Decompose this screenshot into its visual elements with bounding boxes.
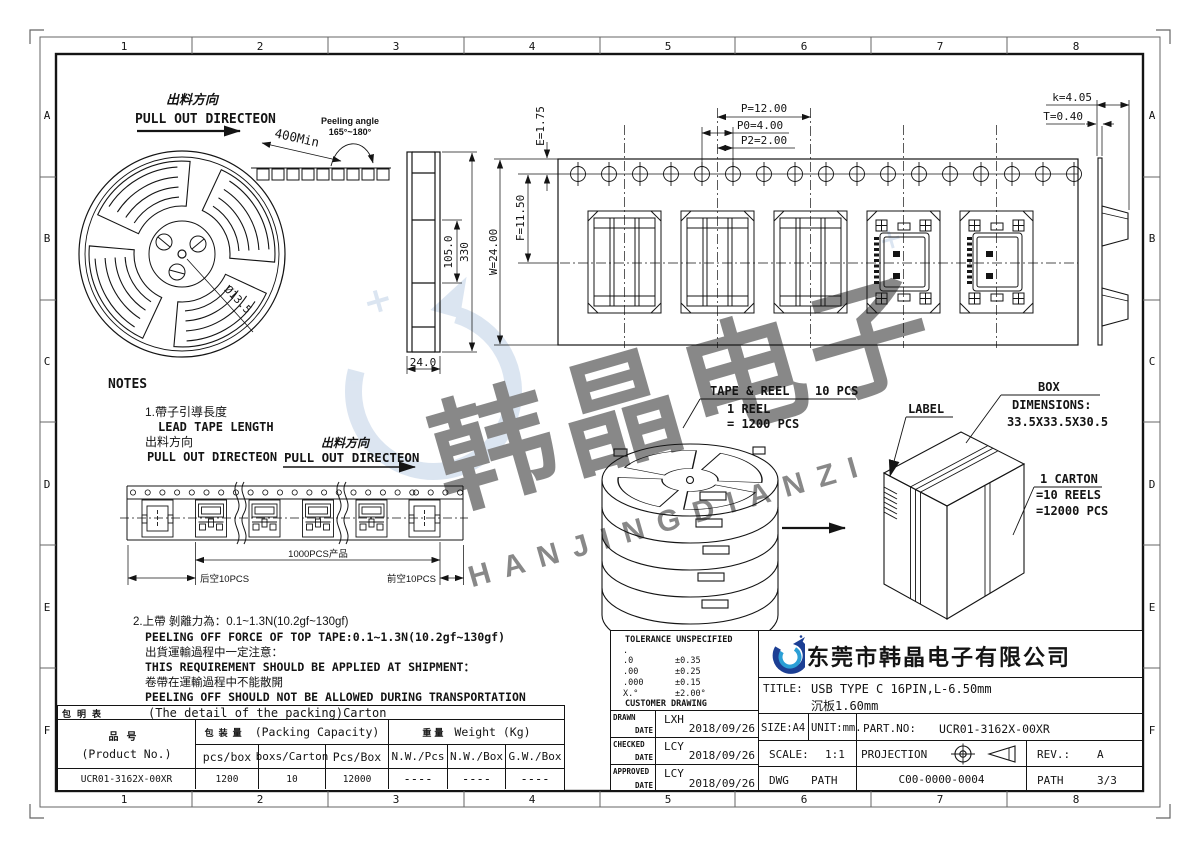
scale-cell: SCALE: 1:1: [759, 741, 857, 767]
row-boxes-carton: 10: [259, 769, 326, 789]
row-pcs-box: 1200: [196, 769, 259, 789]
box-label-hatch: [884, 487, 897, 519]
part-number: UCR01-3162X-00XR: [939, 722, 1050, 736]
row-gw-box: ----: [506, 769, 564, 789]
svg-text:6: 6: [801, 40, 808, 53]
reel-side-view: 105.0 330 24.0: [407, 152, 477, 374]
row-nw-box: ----: [448, 769, 506, 789]
svg-text:7: 7: [937, 793, 944, 806]
title-label: TITLE:: [763, 682, 803, 695]
pull-out-direction-top: 出料方向 PULL OUT DIRECTEON: [135, 92, 276, 131]
note-2: 2.上帶 剝離力為：0.1~1.3N(10.2gf~130gf) PEELING…: [133, 614, 526, 704]
reel-front-view: Ø13.5: [79, 151, 285, 357]
svg-text:1.帶子引導長度: 1.帶子引導長度: [145, 404, 227, 419]
drawing-title-line2: 沉板1.60mm: [811, 697, 878, 714]
projection-symbol: [949, 743, 1023, 765]
packing-table: 包明表 (The detail of the packing)Carton 品号…: [57, 705, 565, 791]
notes-section: NOTES 1.帶子引導長度 LEAD TAPE LENGTH 出料方向 PUL…: [108, 377, 419, 467]
svg-text:2.上帶 剝離力為：0.1~1.3N(10.2gf~130g: 2.上帶 剝離力為：0.1~1.3N(10.2gf~130gf): [133, 614, 349, 628]
svg-text:8: 8: [1073, 793, 1080, 806]
col-boxs-carton: boxs/Carton: [259, 745, 326, 769]
col-pcs-box: pcs/box: [196, 745, 259, 769]
approved-role: APPROVED DATE: [611, 765, 656, 792]
unit-cell: UNIT:mm.: [809, 714, 857, 741]
svg-text:PEELING OFF SHOULD NOT BE ALLO: PEELING OFF SHOULD NOT BE ALLOWED DURING…: [145, 690, 526, 704]
svg-text:A: A: [1149, 109, 1156, 122]
svg-text:卷帶在運輸過程中不能散開: 卷帶在運輸過程中不能散開: [145, 675, 283, 689]
svg-text:3: 3: [393, 793, 400, 806]
reel-count-2: = 1200 PCS: [727, 417, 799, 431]
svg-text:5: 5: [665, 40, 672, 53]
pull-out-2-en: PULL OUT DIRECTEON: [284, 450, 419, 465]
tape-reel-label: TAPE & REEL: [710, 384, 789, 398]
svg-text:3: 3: [393, 40, 400, 53]
company-header: 东莞市韩晶电子有限公司: [759, 631, 1144, 678]
pull-out-2-cn: 出料方向: [321, 436, 371, 450]
svg-text:2: 2: [257, 793, 264, 806]
dim-p: P=12.00: [741, 102, 787, 115]
projection-cell: PROJECTION: [857, 741, 1027, 767]
svg-text:C: C: [44, 355, 51, 368]
lead-length-label: 400Min: [273, 125, 320, 149]
watermark: 韩晶电子 HANJINGDIANZI: [325, 144, 972, 611]
approved-sign: LCY 2018/09/26: [656, 765, 759, 792]
svg-text:2: 2: [257, 40, 264, 53]
tape-section-view: k=4.05 T=0.40: [1043, 91, 1129, 345]
drawn-sign: LXH 2018/09/26: [656, 711, 759, 738]
reel-count-1: 1 REEL: [727, 402, 770, 416]
svg-text:PEELING OFF FORCE OF TOP TAPE:: PEELING OFF FORCE OF TOP TAPE:0.1~1.3N(1…: [145, 630, 505, 644]
carton-count-1: 1 CARTON: [1040, 472, 1098, 486]
svg-text:7: 7: [937, 40, 944, 53]
hub-diameter-label: Ø13.5: [222, 283, 254, 316]
col-nw-box: N.W./Box: [448, 745, 506, 769]
col-nw-pcs: N.W./Pcs: [389, 745, 448, 769]
svg-text:D: D: [44, 478, 51, 491]
dim-t: T=0.40: [1043, 110, 1083, 123]
box-callout: BOX: [1038, 380, 1060, 394]
size-cell: SIZE:A4: [759, 714, 809, 741]
company-name: 东莞市韩晶电子有限公司: [807, 640, 1071, 672]
svg-text:出料方向: 出料方向: [166, 92, 220, 107]
dwg-number: C00-0000-0004: [857, 767, 1027, 792]
svg-text:6: 6: [801, 793, 808, 806]
col-product: 品号 (Product No.): [58, 720, 196, 769]
svg-text:出貨運輸過程中一定注意：: 出貨運輸過程中一定注意：: [145, 645, 283, 659]
svg-text:4: 4: [529, 40, 536, 53]
svg-text:8: 8: [1073, 40, 1080, 53]
row-pcs-carton: 12000: [326, 769, 389, 789]
carton-box: LABEL BOX DIMENSIONS: 33.5X33.5X30.5 1 C…: [884, 380, 1108, 619]
svg-text:LEAD TAPE LENGTH: LEAD TAPE LENGTH: [158, 420, 274, 434]
tape-strip-detail: 1000PCS产品 后空10PCS 前空10PCS: [120, 482, 468, 585]
dim-f: F=11.50: [514, 195, 527, 241]
strip-left-label: 后空10PCS: [200, 573, 249, 585]
row-nw-pcs: ----: [389, 769, 448, 789]
revision: A: [1097, 748, 1104, 761]
packing-table-caption: (The detail of the packing)Carton: [148, 706, 386, 720]
label-callout: LABEL: [908, 402, 944, 416]
carton-count-2: =10 REELS: [1036, 488, 1101, 502]
reel-width-dim: 24.0: [410, 356, 437, 369]
svg-text:PULL OUT DIRECTEON: PULL OUT DIRECTEON: [135, 112, 276, 127]
page-cell: PATH 3/3: [1027, 767, 1144, 792]
svg-text:B: B: [44, 232, 51, 245]
page-number: 3/3: [1097, 774, 1117, 787]
svg-text:1: 1: [121, 40, 128, 53]
svg-text:E: E: [44, 601, 51, 614]
carton-count-3: =12000 PCS: [1036, 504, 1108, 518]
dwg-path-cell: DWG PATH: [759, 767, 857, 792]
dim-p0: P0=4.00: [737, 119, 783, 132]
svg-text:F: F: [1149, 724, 1156, 737]
title-row: TITLE: USB TYPE C 16PIN,L-6.50mm 沉板1.60m…: [759, 678, 1144, 714]
svg-text:4: 4: [529, 793, 536, 806]
svg-text:B: B: [1149, 232, 1156, 245]
drawing-sheet: 韩晶电子 HANJINGDIANZI 12345678 12345678 ABC…: [0, 0, 1200, 848]
partno-cell: PART.NO: UCR01-3162X-00XR: [857, 714, 1144, 741]
company-logo: [765, 634, 805, 676]
svg-text:PULL OUT DIRECTEON: PULL OUT DIRECTEON: [147, 450, 277, 464]
title-block: TOLERANCE UNSPECIFIED . .0±0.35 .00±0.25…: [610, 630, 1143, 791]
group-weight: 重量 Weight (Kg): [389, 720, 564, 745]
col-pcs-carton: Pcs/Box: [326, 745, 389, 769]
group-capacity: 包装量 (Packing Capacity): [196, 720, 389, 745]
packing-table-corner: 包明表: [62, 707, 107, 720]
watermark-cn: 韩晶电子: [417, 257, 954, 531]
tape-reel-qty: 10 PCS: [815, 384, 858, 398]
dim-e: E=1.75: [534, 106, 547, 146]
drawing-title-line1: USB TYPE C 16PIN,L-6.50mm: [811, 682, 992, 696]
notes-title: NOTES: [108, 377, 147, 392]
svg-text:E: E: [1149, 601, 1156, 614]
dim-w: W=24.00: [487, 229, 500, 275]
tolerance-box: TOLERANCE UNSPECIFIED . .0±0.35 .00±0.25…: [611, 631, 759, 711]
svg-text:A: A: [44, 109, 51, 122]
svg-text:5: 5: [665, 793, 672, 806]
dim-k: k=4.05: [1052, 91, 1092, 104]
checked-role: CHECKED DATE: [611, 738, 656, 765]
strip-qty-label: 1000PCS产品: [288, 548, 348, 560]
svg-text:1: 1: [121, 793, 128, 806]
dim-p2: P2=2.00: [741, 134, 787, 147]
peeling-angle-value: 165°~180°: [329, 127, 372, 137]
box-dims-value: 33.5X33.5X30.5: [1007, 415, 1108, 429]
reel-inner-dim: 105.0: [442, 235, 455, 268]
svg-text:THIS REQUIREMENT SHOULD BE APP: THIS REQUIREMENT SHOULD BE APPLIED AT SH…: [145, 660, 475, 674]
strip-right-label: 前空10PCS: [387, 573, 436, 585]
svg-text:出料方向: 出料方向: [145, 434, 193, 449]
col-gw-box: G.W./Box: [506, 745, 564, 769]
rev-cell: REV.: A: [1027, 741, 1144, 767]
box-dims-label: DIMENSIONS:: [1012, 398, 1091, 412]
svg-text:C: C: [1149, 355, 1156, 368]
checked-sign: LCY 2018/09/26: [656, 738, 759, 765]
peeling-angle-label: Peeling angle: [321, 116, 379, 126]
row-product-no: UCR01-3162X-00XR: [58, 769, 196, 789]
drawn-role: DRAWN DATE: [611, 711, 656, 738]
svg-text:D: D: [1149, 478, 1156, 491]
svg-text:F: F: [44, 724, 51, 737]
reel-outer-dim: 330: [458, 242, 471, 262]
